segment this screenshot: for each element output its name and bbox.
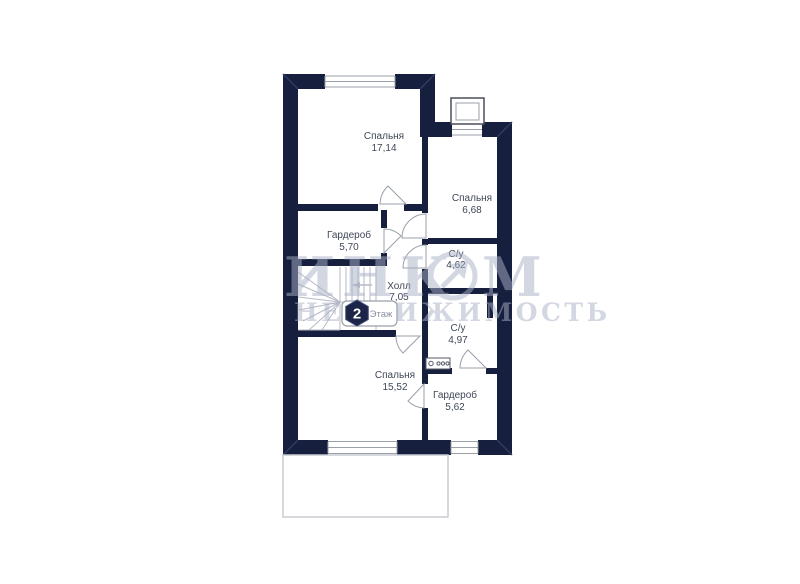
room-label-area: 17,14	[371, 143, 396, 154]
wall-segment	[298, 330, 396, 337]
room-label-name: Спальня	[452, 193, 492, 204]
floor-badge-label: Этаж	[370, 309, 393, 320]
floor-badge: 2 Этаж	[342, 300, 397, 326]
floor-badge-number: 2	[353, 306, 361, 323]
wall-segment	[486, 368, 497, 374]
wall-segment	[381, 210, 387, 228]
wall-segment	[428, 238, 497, 244]
room-label-name: Спальня	[375, 370, 415, 381]
wall-segment	[420, 74, 435, 137]
chimney	[451, 98, 484, 124]
watermark: ИНК М НЕДВИЖИМОСТЬ	[284, 245, 611, 327]
chimney-inner	[456, 103, 479, 120]
wall-segment	[298, 204, 378, 211]
window-bottom-right	[451, 442, 478, 454]
window-vent-right-wing	[452, 124, 482, 135]
wall-segment	[397, 440, 451, 455]
terrace-outline	[283, 455, 448, 517]
floor-plan-drawing: Спальня 17,14 Спальня 6,68 Гардероб 5,70…	[0, 0, 800, 584]
door-bedroom-17	[380, 186, 406, 204]
door-bedroom-1552	[396, 336, 420, 353]
door-bedroom-668	[402, 214, 426, 238]
window-top	[325, 76, 395, 87]
room-label-area: 5,62	[445, 402, 465, 413]
radiator-icon	[426, 358, 450, 369]
door-wardrobe-562	[408, 384, 424, 408]
room-label-name: Гардероб	[433, 389, 477, 401]
window-bottom-left	[328, 442, 397, 454]
room-label-area: 15,52	[382, 382, 407, 393]
wall-segment	[422, 137, 428, 213]
room-label-name: Спальня	[364, 131, 404, 142]
door-bath-497	[460, 350, 486, 368]
wall-segment	[422, 408, 428, 440]
room-label-area: 4,97	[448, 335, 468, 346]
floor-plan-page: Спальня 17,14 Спальня 6,68 Гардероб 5,70…	[0, 0, 800, 584]
room-label-name: Гардероб	[327, 229, 371, 241]
room-label-area: 6,68	[462, 205, 482, 216]
